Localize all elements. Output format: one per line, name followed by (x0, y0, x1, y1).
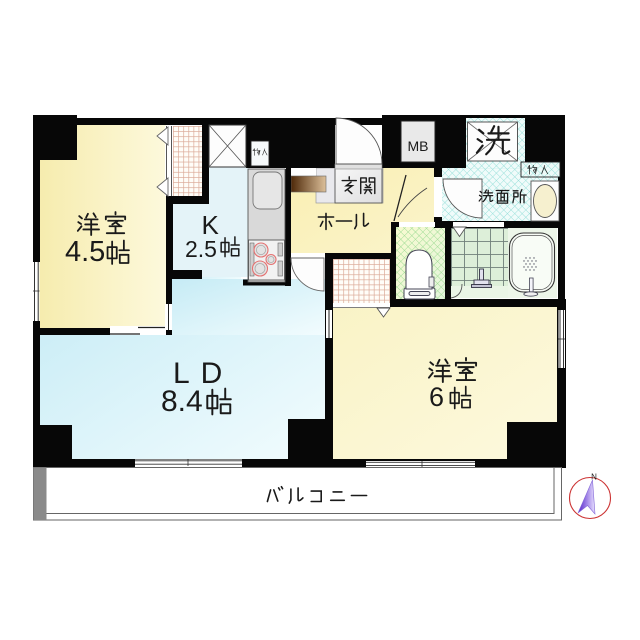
svg-text:N: N (591, 473, 597, 482)
svg-text:2.5: 2.5 (185, 236, 217, 262)
svg-text:8.4: 8.4 (161, 385, 203, 418)
svg-text:6: 6 (429, 382, 444, 412)
svg-text:4.5: 4.5 (65, 236, 105, 268)
svg-text:MB: MB (408, 138, 429, 154)
